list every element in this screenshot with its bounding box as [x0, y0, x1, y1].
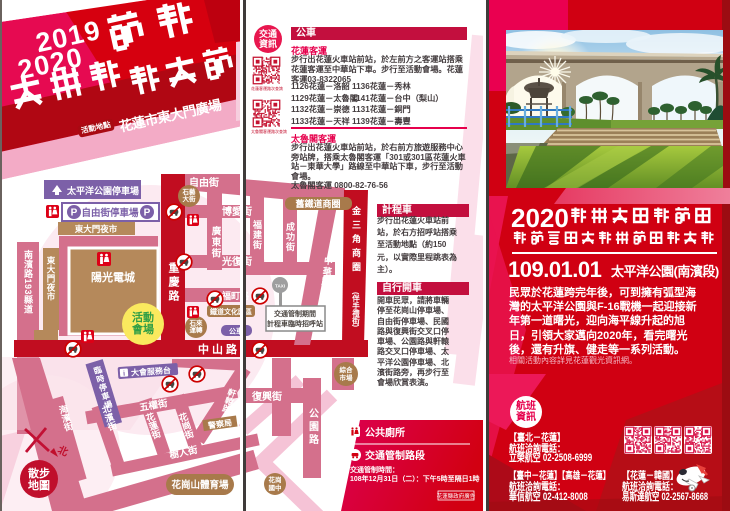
svg-text:運轉: 運轉: [190, 325, 204, 334]
svg-text:綜合: 綜合: [340, 365, 354, 374]
svg-text:博愛街: 博愛街: [222, 205, 252, 218]
svg-text:舊鐵道商圈: 舊鐵道商圈: [295, 198, 340, 209]
svg-text:廣東街: 廣東街: [210, 225, 223, 259]
svg-text:金三角商圈: 金三角商圈: [351, 205, 362, 276]
svg-text:公共廁所: 公共廁所: [365, 426, 405, 439]
svg-text:中山路: 中山路: [198, 342, 240, 356]
svg-text:鐵道文化園區: 鐵道文化園區: [210, 307, 252, 316]
svg-text:108年12月31日（二）：下午5時至隔日1時‧: 108年12月31日（二）：下午5時至隔日1時‧: [350, 474, 480, 483]
svg-text:散步: 散步: [28, 466, 50, 480]
svg-text:東大門夜市: 東大門夜市: [46, 255, 56, 301]
svg-text:交通管制時間：: 交通管制時間：: [350, 465, 399, 474]
svg-text:南濱路193縣道: 南濱路193縣道: [23, 249, 34, 315]
svg-text:大街: 大街: [183, 194, 197, 203]
svg-text:光復街: 光復街: [221, 255, 252, 268]
svg-text:P: P: [71, 208, 78, 219]
svg-text:太平洋公園停車場: 太平洋公園停車場: [66, 185, 139, 196]
svg-text:陽光電城: 陽光電城: [91, 270, 135, 284]
svg-text:東大門夜市: 東大門夜市: [75, 224, 118, 234]
svg-text:活動: 活動: [132, 310, 154, 324]
svg-text:福建街: 福建街: [252, 219, 263, 250]
svg-text:成功街: 成功街: [285, 221, 296, 252]
svg-text:花崗山體育場: 花崗山體育場: [171, 479, 229, 491]
svg-text:計程車臨時招呼站: 計程車臨時招呼站: [267, 319, 323, 328]
svg-text:交通管制期間: 交通管制期間: [274, 309, 316, 318]
svg-text:交通管制路段: 交通管制路段: [365, 449, 425, 462]
svg-text:福町路: 福町路: [221, 290, 250, 301]
svg-text:花蓮縣政府廣告: 花蓮縣政府廣告: [437, 492, 476, 500]
svg-text:公園路: 公園路: [307, 408, 319, 447]
svg-text:花崗: 花崗: [269, 475, 282, 484]
svg-text:石來: 石來: [189, 318, 204, 327]
svg-text:P: P: [144, 208, 151, 219]
svg-text:自由街停車場: 自由街停車場: [81, 207, 139, 219]
svg-text:地圖: 地圖: [28, 478, 50, 492]
svg-text:(伴手禮街): (伴手禮街): [351, 292, 360, 327]
svg-text:TAXI: TAXI: [275, 284, 285, 289]
svg-text:國中: 國中: [269, 483, 282, 492]
svg-text:會場: 會場: [132, 322, 154, 336]
svg-text:復興街: 復興街: [251, 390, 282, 403]
svg-text:石藝: 石藝: [182, 187, 197, 196]
svg-text:市場: 市場: [340, 373, 354, 382]
